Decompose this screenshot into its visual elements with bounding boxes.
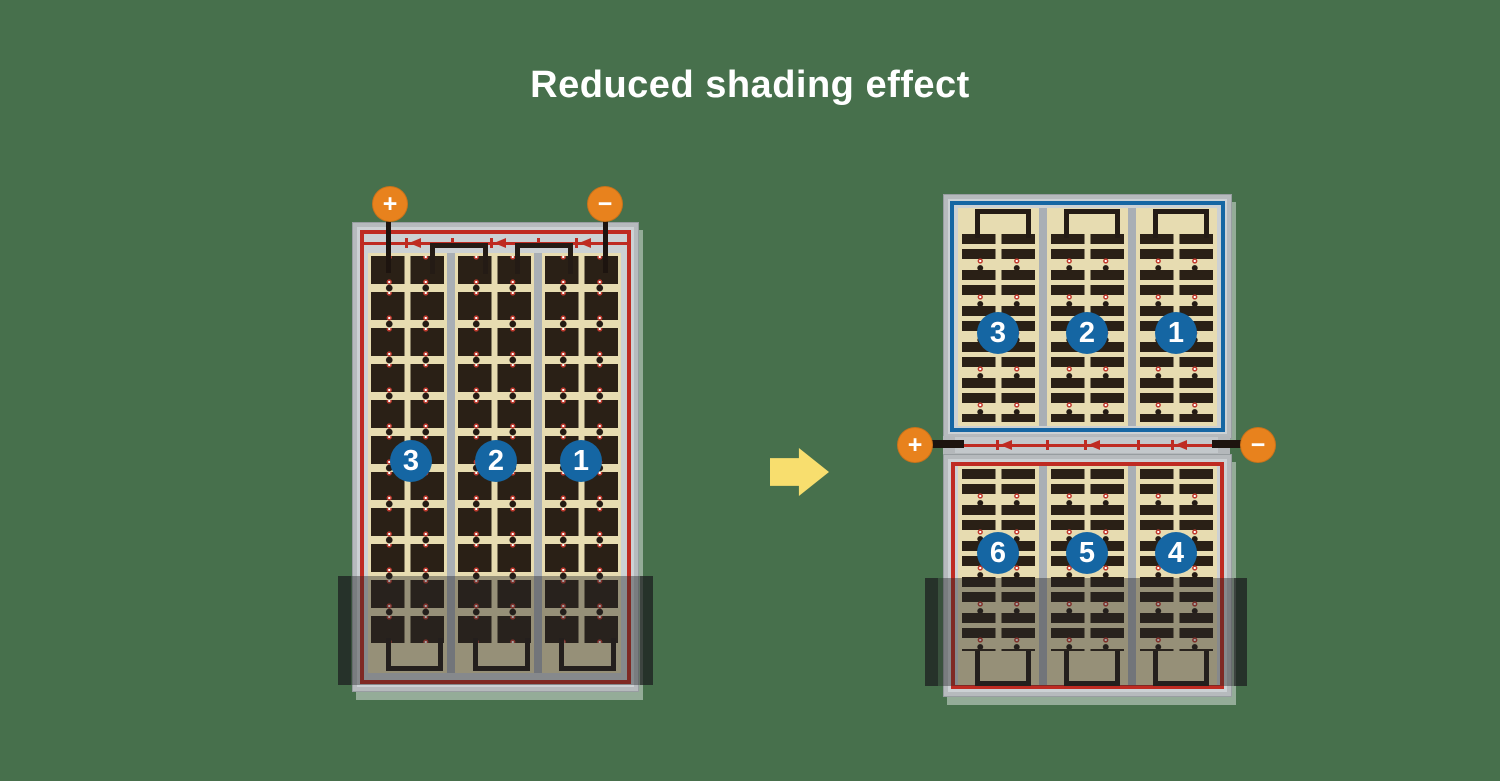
diagram-canvas: Reduced shading effect: [0, 0, 1500, 781]
transform-arrow-icon: [770, 448, 829, 496]
string-number-badge: 2: [475, 440, 517, 482]
negative-terminal: −: [587, 186, 623, 222]
diode-icon: [1078, 439, 1108, 451]
positive-terminal: +: [372, 186, 408, 222]
string-number-badge: 2: [1066, 312, 1108, 354]
plus-icon: +: [383, 190, 398, 219]
shade-edge: [338, 576, 351, 685]
shade-edge: [1234, 578, 1247, 686]
positive-terminal: +: [897, 427, 933, 463]
string-number-badge: 3: [977, 312, 1019, 354]
string-bridge: [515, 243, 573, 274]
bus-tap: [1046, 440, 1049, 450]
diode-icon: [990, 439, 1020, 451]
string-bridge: [430, 243, 488, 274]
string-number-badge: 4: [1155, 532, 1197, 574]
shading-overlay: [338, 576, 653, 685]
diagram-title: Reduced shading effect: [0, 64, 1500, 107]
string-number-badge: 3: [390, 440, 432, 482]
minus-icon: −: [1251, 431, 1266, 460]
junction-box: [943, 436, 1230, 454]
shade-edge: [925, 578, 938, 686]
string-number-badge: 5: [1066, 532, 1108, 574]
string-bridge: [1064, 209, 1120, 238]
plus-icon: +: [908, 431, 923, 460]
diode-busbar: [363, 236, 628, 250]
minus-icon: −: [598, 190, 613, 219]
string-number-badge: 1: [560, 440, 602, 482]
string-bridge: [975, 209, 1031, 238]
diode-icon: [1165, 439, 1195, 451]
shading-overlay: [925, 578, 1247, 686]
diode-icon: [399, 237, 429, 249]
string-number-badge: 6: [977, 532, 1019, 574]
diode-icon: [569, 237, 599, 249]
half-cut-panel-top: 3 2 1: [943, 194, 1232, 439]
diode-icon: [484, 237, 514, 249]
string-bridge: [1153, 209, 1209, 238]
shade-edge: [640, 576, 653, 685]
string-number-badge: 1: [1155, 312, 1197, 354]
negative-terminal: −: [1240, 427, 1276, 463]
bus-tap: [1137, 440, 1140, 450]
